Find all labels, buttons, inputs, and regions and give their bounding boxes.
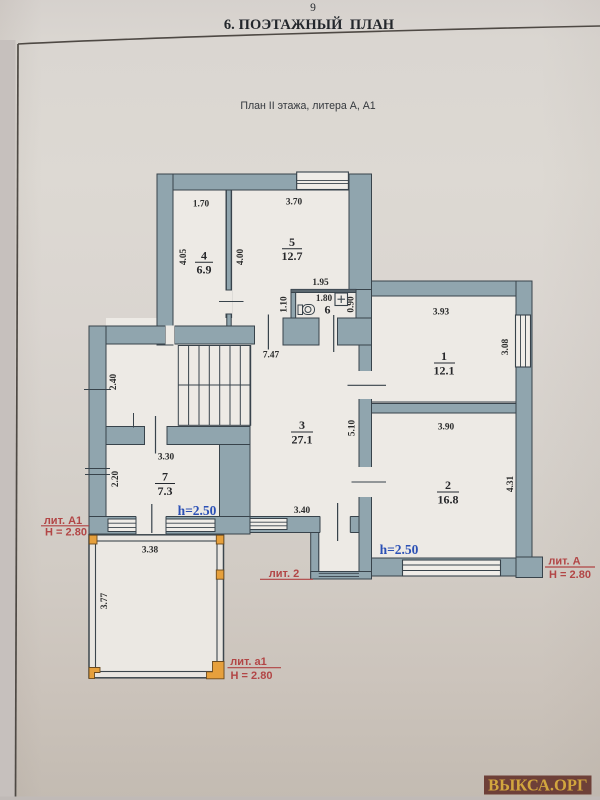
- svg-text:7: 7: [162, 470, 168, 484]
- svg-text:3.90: 3.90: [438, 423, 455, 433]
- svg-text:12.1: 12.1: [434, 364, 455, 378]
- svg-text:h=2.50: h=2.50: [380, 542, 419, 557]
- svg-text:4.31: 4.31: [506, 476, 516, 493]
- svg-text:3.08: 3.08: [501, 339, 511, 356]
- svg-text:1: 1: [441, 349, 447, 363]
- svg-text:4.00: 4.00: [236, 249, 246, 266]
- svg-text:27.1: 27.1: [292, 433, 313, 447]
- svg-text:16.8: 16.8: [438, 493, 459, 507]
- svg-text:3.77: 3.77: [100, 593, 110, 610]
- svg-text:3.38: 3.38: [142, 546, 159, 556]
- svg-text:ВЫКСА.ОРГ: ВЫКСА.ОРГ: [488, 776, 587, 795]
- svg-text:лит. а1: лит. а1: [230, 656, 267, 668]
- svg-text:Н = 2.80: Н = 2.80: [45, 527, 87, 539]
- svg-text:h=2.50: h=2.50: [178, 503, 217, 518]
- svg-text:1.70: 1.70: [193, 200, 210, 210]
- svg-text:12.7: 12.7: [282, 249, 303, 263]
- svg-text:6.9: 6.9: [197, 263, 212, 277]
- svg-text:3.70: 3.70: [286, 198, 303, 208]
- svg-text:План II этажа, литера А, А1: План II этажа, литера А, А1: [240, 100, 375, 112]
- svg-text:9: 9: [310, 2, 316, 14]
- svg-text:7.47: 7.47: [263, 351, 280, 361]
- svg-text:1.10: 1.10: [280, 296, 290, 313]
- svg-text:3.30: 3.30: [158, 453, 175, 463]
- svg-text:лит. 2: лит. 2: [269, 568, 299, 580]
- svg-text:2: 2: [445, 478, 451, 492]
- svg-text:4: 4: [201, 249, 207, 263]
- svg-text:Н = 2.80: Н = 2.80: [231, 670, 273, 682]
- svg-text:1.95: 1.95: [312, 278, 329, 288]
- svg-text:2.20: 2.20: [111, 471, 121, 488]
- svg-text:3.40: 3.40: [294, 506, 311, 516]
- svg-text:5.10: 5.10: [348, 420, 358, 437]
- svg-text:7.3: 7.3: [158, 484, 173, 498]
- svg-text:5: 5: [289, 235, 295, 249]
- svg-text:6. ПОЭТАЖНЫЙ ПЛАН: 6. ПОЭТАЖНЫЙ ПЛАН: [224, 16, 395, 33]
- svg-text:3.93: 3.93: [433, 308, 450, 318]
- svg-text:Н = 2.80: Н = 2.80: [549, 569, 591, 581]
- svg-text:лит. А: лит. А: [548, 556, 580, 568]
- svg-text:2.40: 2.40: [109, 374, 119, 391]
- svg-text:4.05: 4.05: [179, 249, 189, 266]
- svg-text:6: 6: [325, 303, 331, 317]
- svg-text:3: 3: [299, 418, 305, 432]
